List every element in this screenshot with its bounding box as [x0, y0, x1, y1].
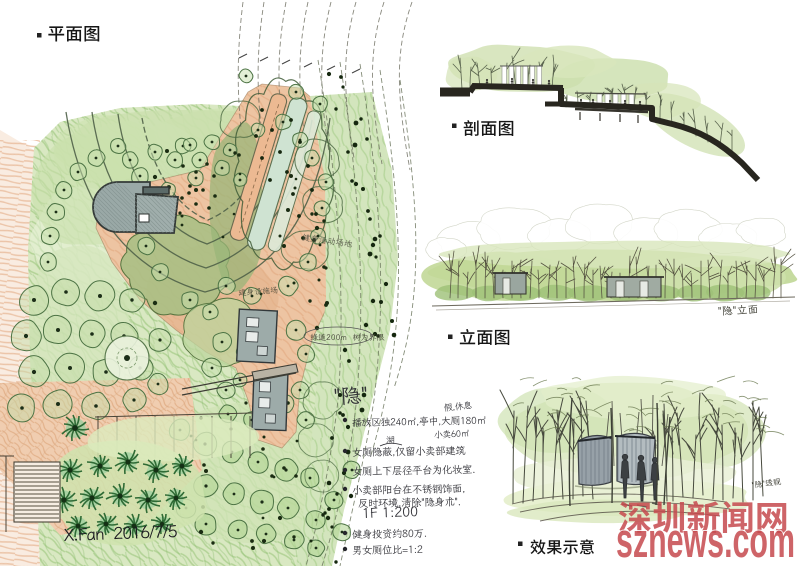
svg-text:sznews.com: sznews.com [616, 514, 795, 566]
